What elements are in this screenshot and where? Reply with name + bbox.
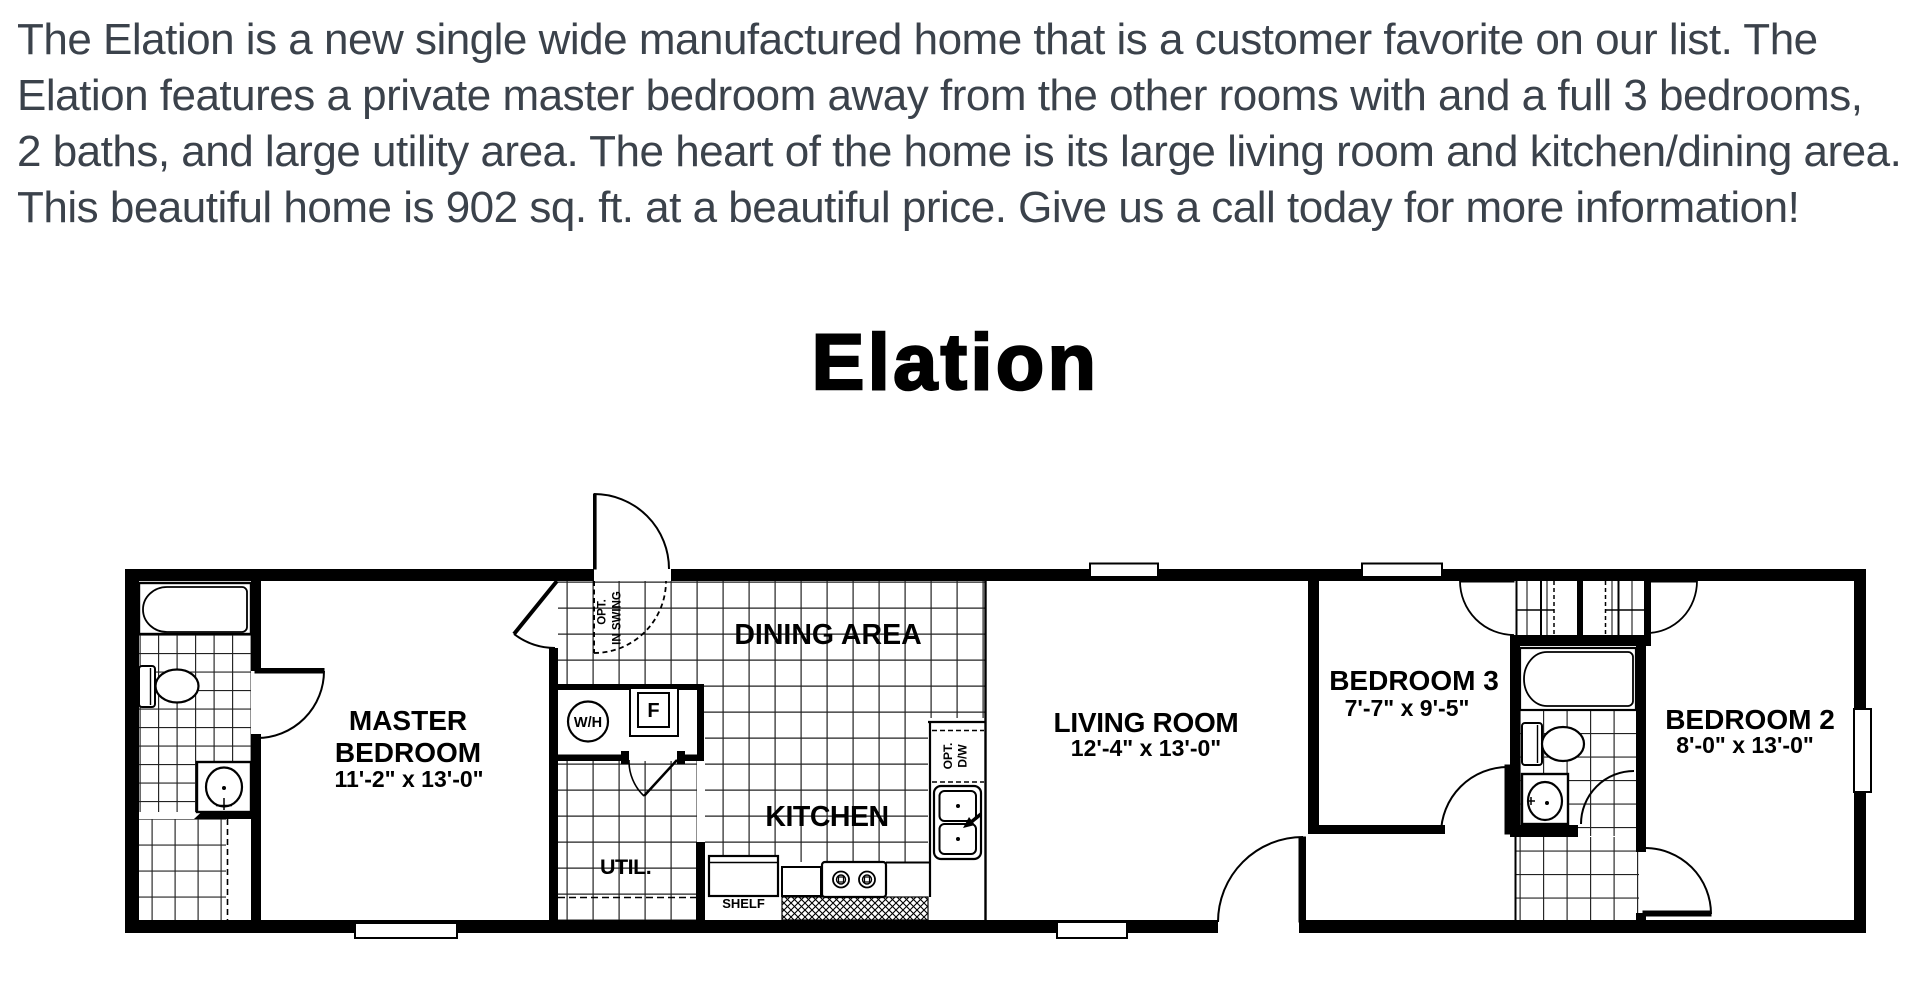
svg-text:F: F (647, 700, 659, 722)
svg-text:BEDROOM 2: BEDROOM 2 (1665, 704, 1835, 735)
svg-text:UTIL.: UTIL. (600, 855, 651, 879)
svg-text:W/H: W/H (574, 715, 602, 731)
svg-text:MASTER: MASTER (349, 705, 467, 736)
svg-text:BEDROOM: BEDROOM (335, 737, 481, 768)
svg-text:11'-2" x 13'-0": 11'-2" x 13'-0" (334, 766, 483, 792)
svg-text:12'-4" x 13'-0": 12'-4" x 13'-0" (1071, 735, 1221, 761)
svg-text:Elation: Elation (812, 317, 1100, 406)
svg-text:OPT.: OPT. (597, 599, 609, 625)
svg-text:OPT.: OPT. (941, 743, 955, 770)
svg-text:KITCHEN: KITCHEN (765, 801, 888, 833)
svg-text:8'-0" x 13'-0": 8'-0" x 13'-0" (1676, 732, 1814, 758)
svg-text:LIVING ROOM: LIVING ROOM (1054, 707, 1239, 738)
svg-text:DINING AREA: DINING AREA (734, 619, 921, 651)
svg-text:IN SWING: IN SWING (612, 591, 624, 645)
svg-text:7'-7" x 9'-5": 7'-7" x 9'-5" (1345, 695, 1470, 721)
svg-text:BEDROOM 3: BEDROOM 3 (1329, 665, 1499, 696)
svg-text:D/W: D/W (956, 744, 970, 768)
svg-text:SHELF: SHELF (722, 896, 765, 911)
